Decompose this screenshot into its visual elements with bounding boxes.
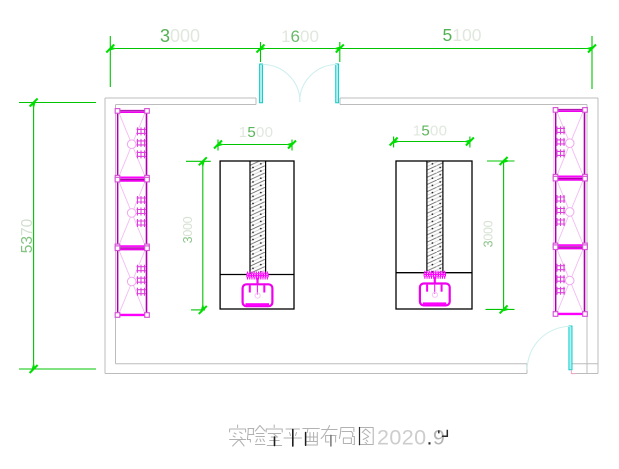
svg-text:1500: 1500	[239, 124, 274, 141]
svg-text:1600: 1600	[281, 27, 319, 46]
svg-text:3000: 3000	[160, 26, 200, 46]
svg-text:5100: 5100	[443, 25, 482, 45]
svg-text:2020.9: 2020.9	[377, 425, 445, 449]
svg-text:3000: 3000	[481, 220, 495, 247]
svg-text:5370: 5370	[19, 218, 36, 253]
svg-text:1500: 1500	[413, 123, 448, 140]
svg-text:3000: 3000	[181, 216, 195, 243]
